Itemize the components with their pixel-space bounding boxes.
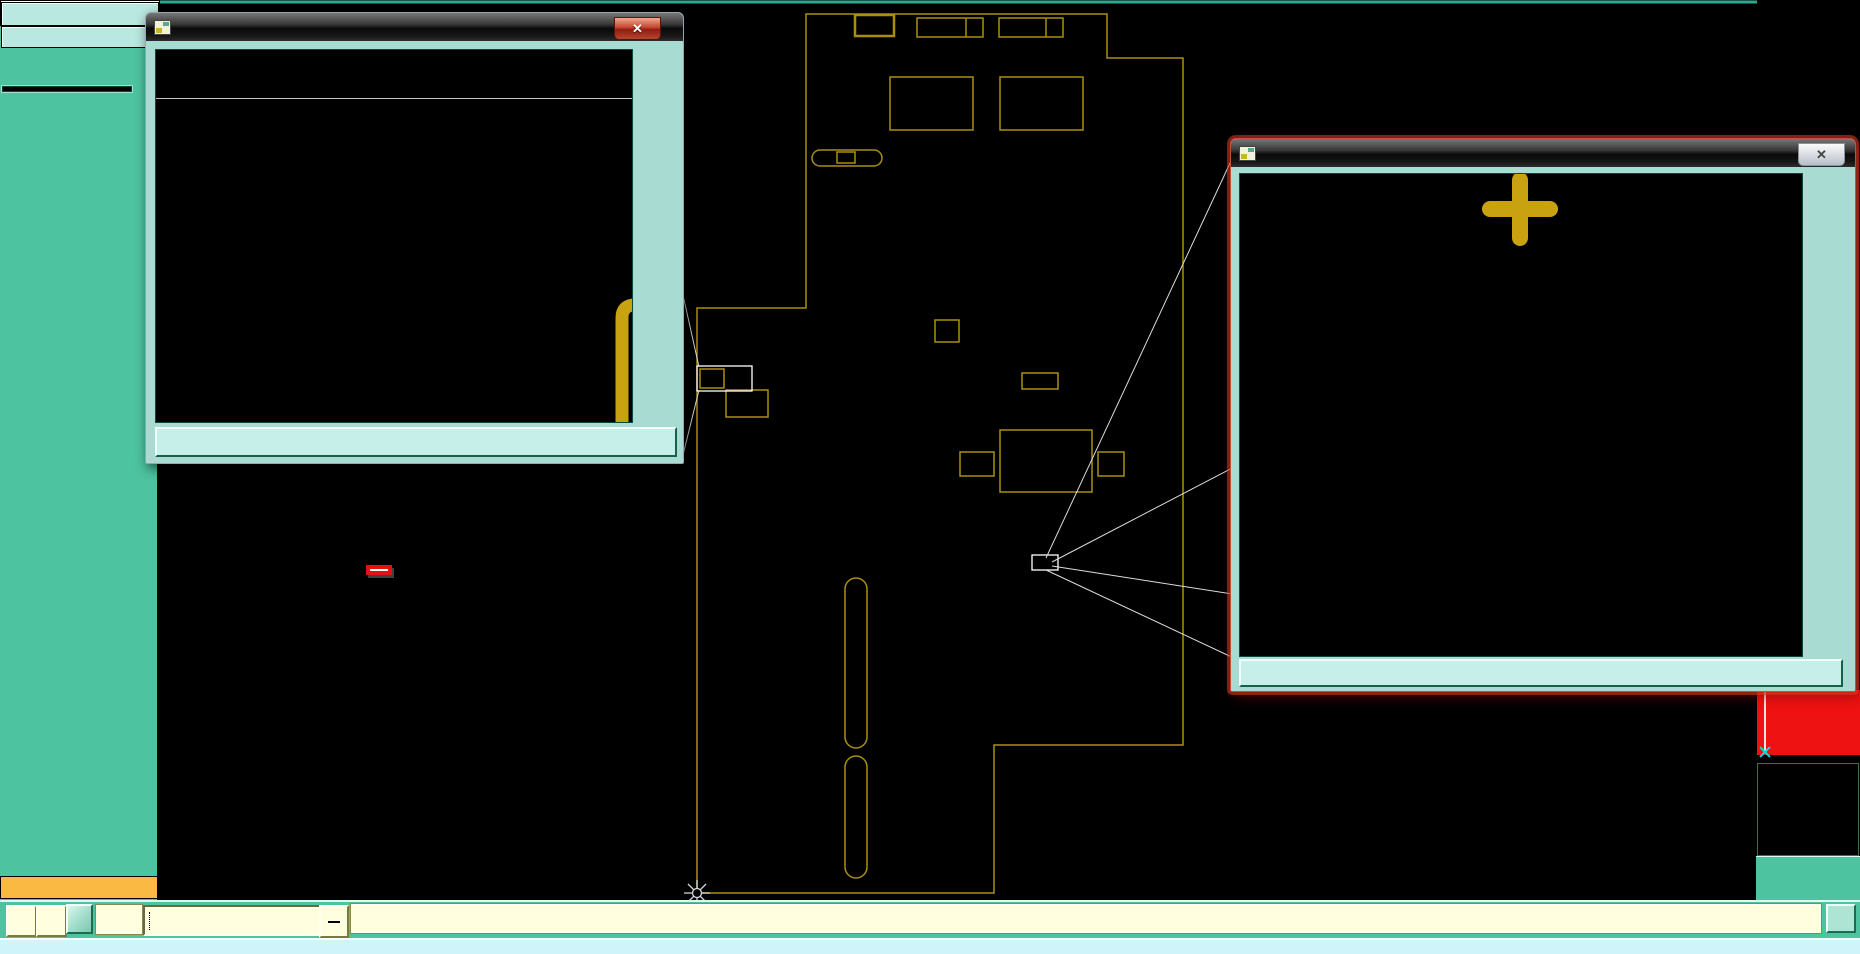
cam-application-window: ✕ ✕ <box>0 0 1860 954</box>
popview-window-icon <box>154 20 171 35</box>
corner-button[interactable] <box>1826 904 1856 933</box>
pcb-board[interactable] <box>697 14 1183 893</box>
resize-diagonal-button[interactable] <box>6 905 37 937</box>
sidebar <box>0 0 157 900</box>
silk-plus-mark <box>1240 174 1802 656</box>
prompt-message <box>350 903 1822 934</box>
layer-list <box>2 86 132 92</box>
popview-1-titlebar[interactable] <box>1231 139 1855 167</box>
minimap-panel <box>1757 763 1859 856</box>
slot <box>845 756 867 878</box>
popview-source-box-c308 <box>1032 555 1058 570</box>
status-bar <box>0 938 1860 954</box>
popview-1-window[interactable]: ✕ <box>1230 138 1856 692</box>
slot <box>845 578 867 748</box>
red-panel <box>1757 690 1860 755</box>
text-cursor <box>149 912 151 930</box>
popview-1-canvas[interactable] <box>1239 173 1803 657</box>
transformer <box>1000 77 1083 130</box>
popview-1-close-button[interactable] <box>1239 659 1843 687</box>
selected-count <box>0 876 158 899</box>
connector <box>917 18 983 37</box>
silk-corner-shape <box>156 50 632 422</box>
ic <box>1000 430 1092 492</box>
step-field <box>1 26 159 48</box>
close-icon[interactable]: ✕ <box>614 17 661 40</box>
popview-2-titlebar[interactable] <box>146 13 683 41</box>
cross-marker <box>1758 745 1772 759</box>
coordinate-readout <box>1756 856 1860 900</box>
connector <box>999 18 1063 37</box>
annotation-note <box>366 565 392 575</box>
exclamation-icon <box>328 921 340 923</box>
command-bar <box>0 900 1860 938</box>
popview-2-close-button[interactable] <box>155 427 677 457</box>
overlay-grid-button[interactable] <box>66 904 93 934</box>
board-outline <box>697 14 1183 893</box>
popview-window-icon <box>1239 146 1256 161</box>
popview-2-window[interactable]: ✕ <box>145 12 684 464</box>
connector <box>855 15 894 36</box>
xy-label <box>95 904 143 935</box>
close-icon[interactable]: ✕ <box>1798 143 1845 166</box>
leader-vline <box>1764 686 1766 752</box>
measure-angle-button[interactable] <box>36 905 67 937</box>
job-field <box>1 2 159 26</box>
alert-button[interactable] <box>319 905 349 938</box>
popview-2-canvas[interactable] <box>155 49 633 423</box>
transformer <box>890 77 973 130</box>
coordinate-input[interactable] <box>143 905 323 936</box>
